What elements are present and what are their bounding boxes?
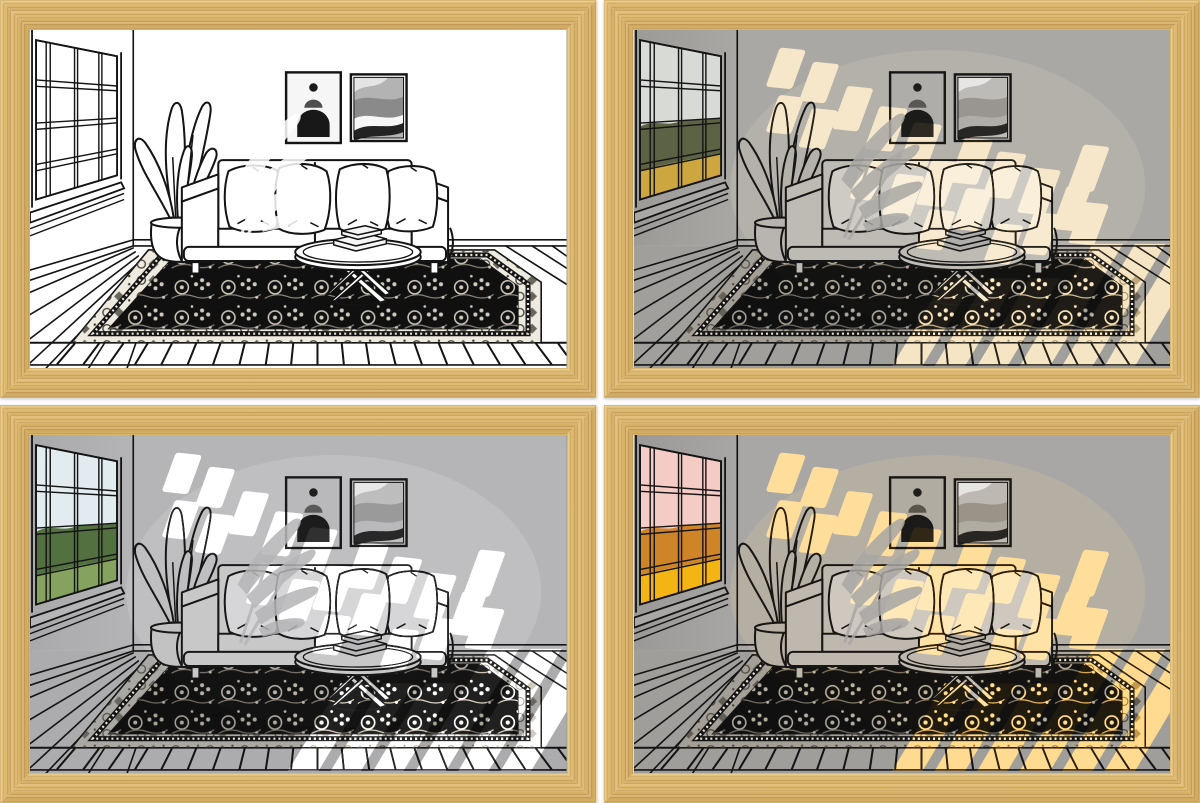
frame-edge-right [567, 0, 597, 398]
product-image-grid [0, 0, 1200, 803]
art-frame-top-left [0, 0, 597, 398]
artwork-line-art-white [30, 30, 567, 368]
art-frame-bottom-left [0, 405, 597, 803]
artwork-cool-white-light [30, 435, 567, 773]
frame-edge-top [0, 0, 597, 30]
frame-edge-bottom [604, 368, 1200, 398]
frame-edge-bottom [0, 368, 597, 398]
frame-edge-right [1170, 0, 1200, 398]
frame-edge-top [0, 405, 597, 435]
frame-edge-top [604, 405, 1200, 435]
art-frame-top-right [604, 0, 1200, 398]
frame-edge-top [604, 0, 1200, 30]
frame-edge-left [604, 405, 634, 803]
artwork-warm-sunset-light [634, 435, 1171, 773]
artwork-warm-glow [634, 30, 1171, 368]
frame-edge-right [1170, 405, 1200, 803]
frame-edge-left [604, 0, 634, 398]
frame-edge-bottom [604, 773, 1200, 803]
frame-edge-bottom [0, 773, 597, 803]
frame-edge-right [567, 405, 597, 803]
art-frame-bottom-right [604, 405, 1200, 803]
frame-edge-left [0, 405, 30, 803]
frame-edge-left [0, 0, 30, 398]
